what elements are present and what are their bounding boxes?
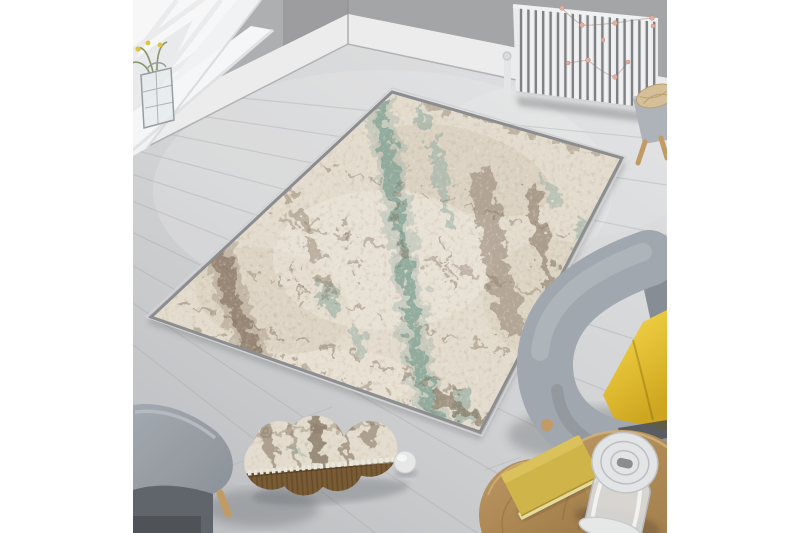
room-photo bbox=[133, 0, 667, 533]
vignette bbox=[133, 0, 667, 533]
product-photo-canvas bbox=[0, 0, 800, 533]
